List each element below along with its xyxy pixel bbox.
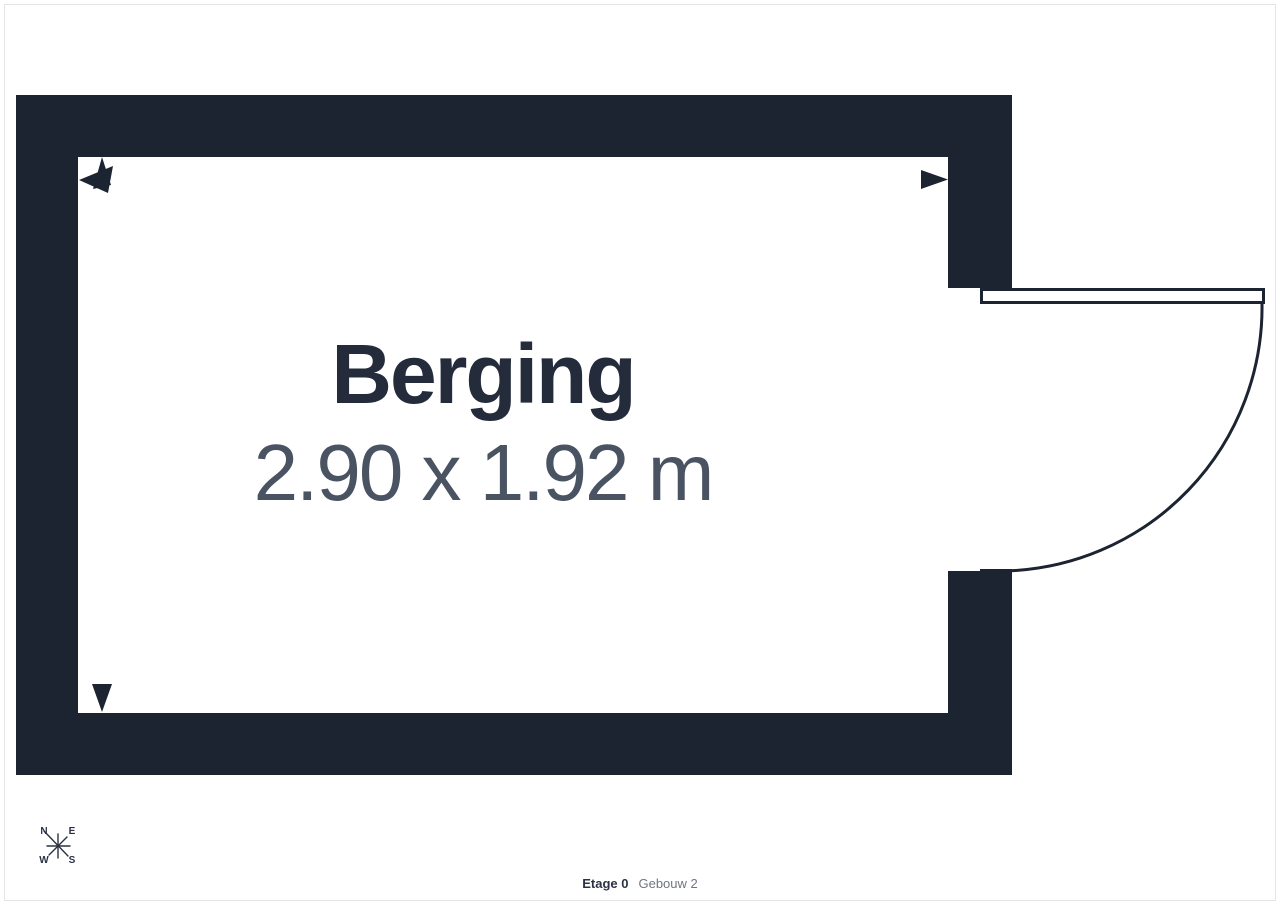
footer-caption: Etage 0 Gebouw 2 [0, 876, 1280, 891]
dimension-arrow-left [79, 166, 113, 193]
dimension-arrow-down [92, 684, 112, 712]
compass-west-label: W [39, 856, 48, 866]
floor-label: Etage 0 [582, 876, 628, 891]
door-swing-arc [1005, 303, 1262, 571]
floorplan-drawing [0, 0, 1280, 905]
compass-east-label: E [69, 827, 76, 837]
compass-south-label: S [69, 856, 76, 866]
dimension-arrow-right [921, 170, 948, 189]
floorplan-page: Berging 2.90 x 1.92 m N E W S Etage 0 Ge… [0, 0, 1280, 905]
room-walls [16, 95, 1012, 775]
compass-star-icon [44, 831, 70, 858]
building-label: Gebouw 2 [638, 876, 697, 891]
door-leaf [982, 290, 1264, 303]
door-opening [946, 288, 1013, 571]
compass-north-label: N [40, 827, 47, 837]
